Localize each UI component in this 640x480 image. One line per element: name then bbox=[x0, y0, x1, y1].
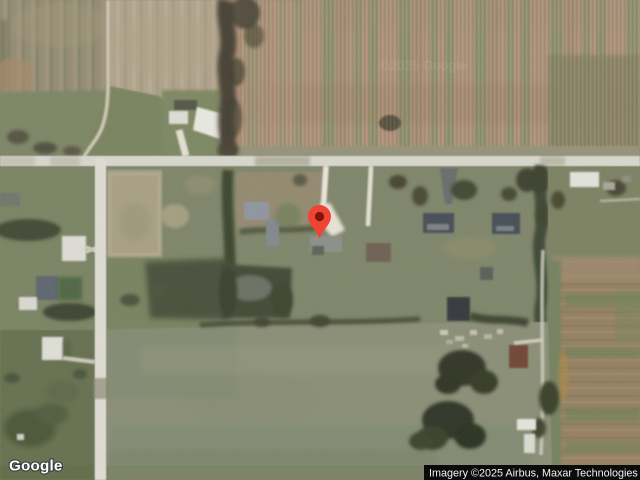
svg-text:Imagery ©2025 Airbus, Maxar Te: Imagery ©2025 Airbus, Maxar Technologies bbox=[429, 468, 638, 480]
svg-text:Google: Google bbox=[9, 458, 63, 475]
